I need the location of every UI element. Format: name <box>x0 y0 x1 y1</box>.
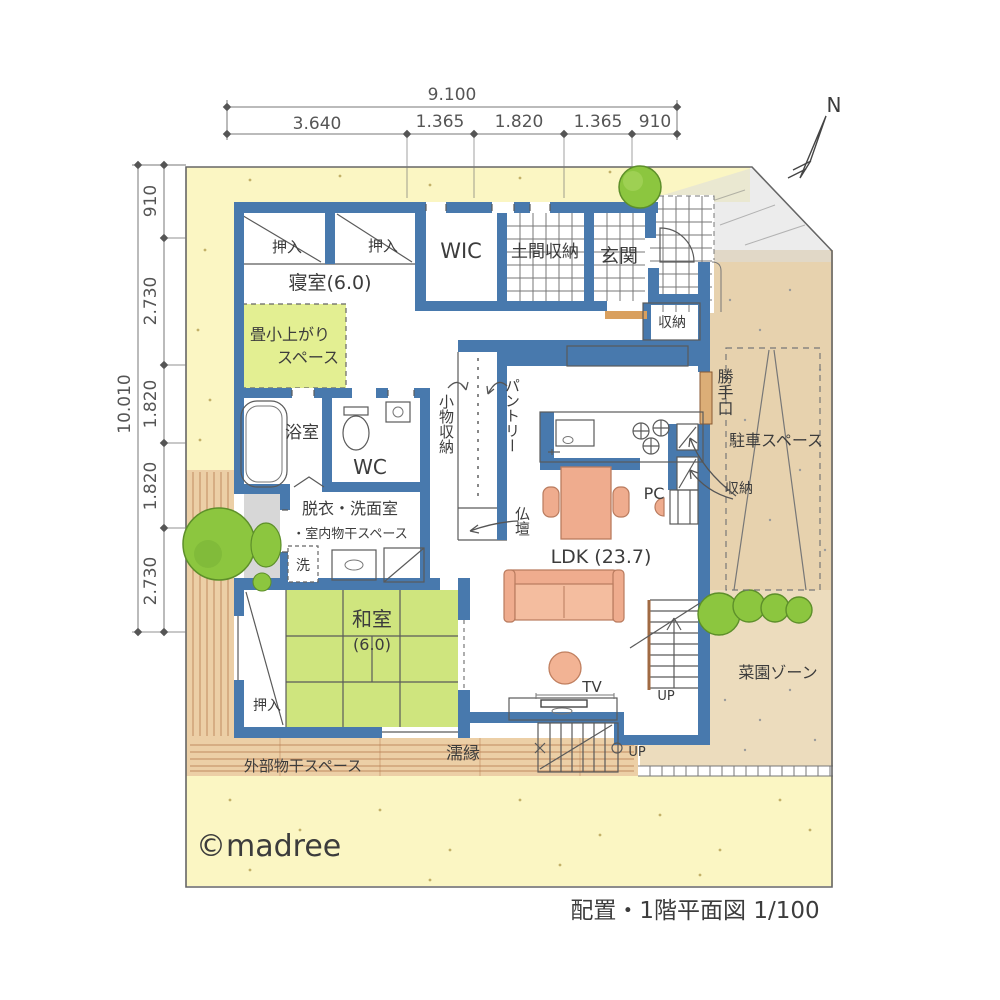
tatami-step-area <box>242 304 346 388</box>
label-tv: TV <box>581 678 602 696</box>
label-ldk: LDK (23.7) <box>551 546 652 568</box>
entry-step-sill <box>605 311 647 319</box>
label-back-door: 勝手口 <box>715 368 734 416</box>
label-doma-storage: 土間収納 <box>511 242 579 262</box>
label-stairs-up: UP <box>657 689 675 704</box>
label-powder-2: ・室内物干スペース <box>292 526 407 542</box>
label-washer: 洗 <box>296 558 310 574</box>
label-parking: 駐車スペース <box>729 431 823 450</box>
bush-pocket <box>251 523 281 567</box>
dim-left-seg3: 1.820 <box>141 380 161 429</box>
dining-chair-right <box>613 487 629 517</box>
label-garden-zone: 菜園ゾーン <box>738 663 817 682</box>
dim-left-seg4: 1.820 <box>141 462 161 511</box>
label-tatami-step-1: 畳小上がり <box>250 325 330 344</box>
label-bath: 浴室 <box>285 423 319 443</box>
dim-top-seg1: 3.640 <box>293 114 342 134</box>
ottoman <box>549 652 581 684</box>
label-tatami-step-2: スペース <box>277 348 339 367</box>
dim-top-total: 9.100 <box>428 85 477 105</box>
label-kitchen-storage: 収納 <box>725 481 753 497</box>
label-bedroom: 寝室(6.0) <box>288 272 371 294</box>
dim-left-seg5: 2.730 <box>141 557 161 606</box>
label-nureen: 濡縁 <box>446 744 480 764</box>
label-outdoor-drying: 外部物干スペース <box>244 757 362 775</box>
watermark: ©madree <box>196 829 341 864</box>
dim-left-seg2: 2.730 <box>141 277 161 326</box>
label-closet-washitsu: 押入 <box>253 698 281 714</box>
dining-table <box>561 467 611 539</box>
label-powder-1: 脱衣・洗面室 <box>302 499 398 518</box>
tv-set <box>541 700 587 707</box>
label-pc: PC <box>644 484 665 503</box>
north-label: N <box>827 93 842 117</box>
label-wic: WIC <box>440 239 482 263</box>
back-door-opening <box>700 372 712 424</box>
dim-left-seg1: 910 <box>141 185 161 217</box>
label-entrance: 玄関 <box>600 245 638 267</box>
driveway-ground <box>710 250 833 590</box>
label-closet-b: 押入 <box>368 237 398 255</box>
dim-top-seg4: 1.365 <box>574 112 623 132</box>
label-closet-a: 押入 <box>272 238 302 256</box>
label-garden-steps-up: UP <box>628 745 646 760</box>
label-wc: WC <box>353 455 387 479</box>
dim-top-seg3: 1.820 <box>495 112 544 132</box>
label-komono-storage: 小物収納 <box>437 394 455 455</box>
label-washitsu-1: 和室 <box>352 607 392 631</box>
dim-top-seg2: 1.365 <box>416 112 465 132</box>
floor-plan-canvas: 9.100 3.640 1.365 1.820 1.365 910 10.010… <box>0 0 1000 1000</box>
label-pantry: パントリー <box>503 378 521 453</box>
tree-left <box>183 508 255 580</box>
sofa-back <box>506 570 618 585</box>
dining-chair-left <box>543 487 559 517</box>
label-hall-storage: 収納 <box>658 315 686 331</box>
dim-top-seg5: 910 <box>639 112 671 132</box>
dim-left-total: 10.010 <box>115 374 135 433</box>
plan-title: 配置・1階平面図 1/100 <box>570 898 819 924</box>
label-washitsu-2: (6.0) <box>353 635 391 654</box>
